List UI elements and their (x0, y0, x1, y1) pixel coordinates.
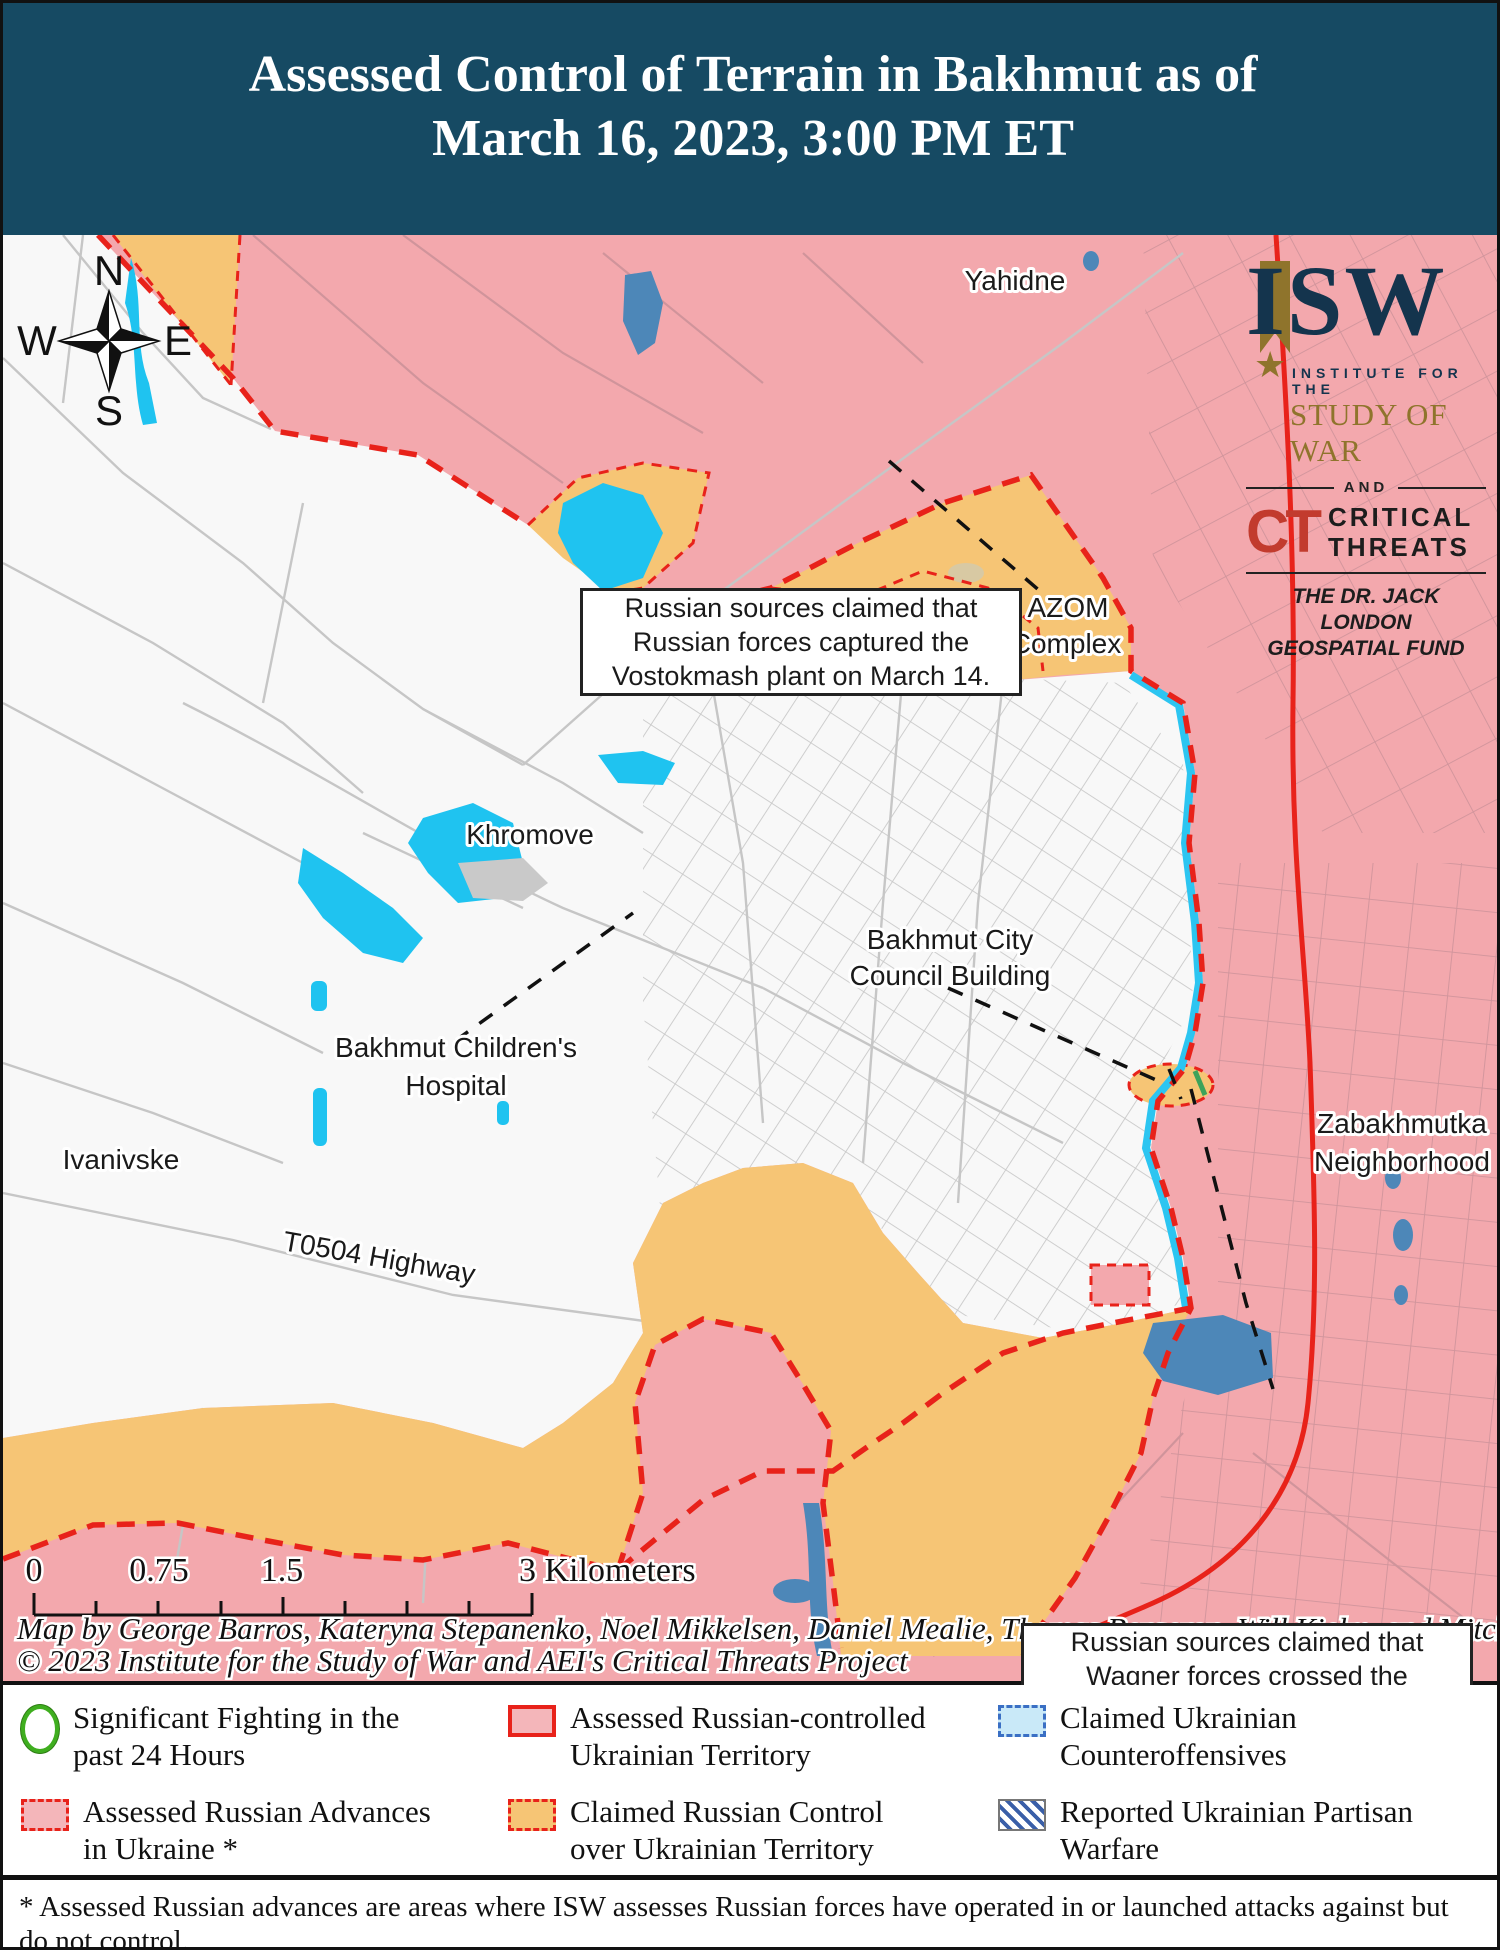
page-title-line1: Assessed Control of Terrain in Bakhmut a… (3, 43, 1500, 107)
isw-wordmark: ISW ★ (1246, 251, 1486, 357)
page: Assessed Control of Terrain in Bakhmut a… (0, 0, 1500, 1950)
russian-advances-icon (21, 1799, 69, 1831)
scale-0: 0 (26, 1552, 43, 1589)
ct-mark-icon: CT (1246, 502, 1318, 562)
legend-label: Claimed Ukrainian Counteroffensives (1060, 1699, 1418, 1773)
compass-s: S (95, 387, 123, 434)
footnote-band: * Assessed Russian advances are areas wh… (3, 1880, 1500, 1950)
legend-label: Assessed Russian-controlled Ukrainian Te… (570, 1699, 928, 1773)
logo-rule-left (1246, 487, 1334, 489)
logo-divider (1246, 572, 1486, 574)
annotation-vostokmash: Russian sources claimed that Russian for… (580, 588, 1022, 696)
label-azom-1: AZOM (1028, 592, 1109, 623)
compass-n: N (94, 247, 124, 294)
isw-star-icon: ★ (1254, 347, 1286, 383)
legend-item-partisan-warfare: Reported Ukrainian Partisan Warfare (998, 1793, 1468, 1867)
legend-item-ukrainian-counteroffensives: Claimed Ukrainian Counteroffensives (998, 1699, 1418, 1773)
title-banner: Assessed Control of Terrain in Bakhmut a… (3, 3, 1500, 235)
ukrainian-counteroffensives-icon (998, 1705, 1046, 1737)
label-hospital-1: Bakhmut Children's (335, 1032, 577, 1063)
legend-label: Significant Fighting in the past 24 Hour… (73, 1699, 401, 1773)
ct-logo-row: CT CRITICAL THREATS (1246, 502, 1486, 562)
footnote-text: * Assessed Russian advances are areas wh… (19, 1890, 1481, 1950)
fund-line1: THE DR. JACK LONDON (1246, 584, 1486, 636)
logo-and-row: AND (1246, 479, 1486, 496)
legend: Significant Fighting in the past 24 Hour… (3, 1685, 1500, 1880)
label-ivanivske: Ivanivske (63, 1144, 180, 1175)
isw-institute-text: INSTITUTE FOR THE (1292, 365, 1486, 397)
annotation-vostokmash-text: Russian sources claimed that Russian for… (593, 591, 1009, 693)
compass-w: W (17, 317, 57, 364)
russian-controlled-icon (508, 1705, 556, 1737)
legend-label: Reported Ukrainian Partisan Warfare (1060, 1793, 1468, 1867)
map-attribution-line2: © 2023 Institute for the Study of War an… (17, 1643, 909, 1678)
legend-item-significant-fighting: Significant Fighting in the past 24 Hour… (21, 1699, 401, 1773)
isw-ct-logo: ISW ★ INSTITUTE FOR THE STUDY OF WAR AND… (1246, 251, 1486, 662)
ct-words: CRITICAL THREATS (1328, 502, 1473, 562)
ct-critical-text: CRITICAL (1328, 502, 1473, 532)
logo-and-text: AND (1344, 479, 1389, 496)
ct-threats-text: THREATS (1328, 532, 1473, 562)
label-hospital-2: Hospital (405, 1070, 506, 1101)
label-zabakhmutka-2: Neighborhood (1314, 1146, 1490, 1177)
isw-study-text: STUDY OF WAR (1290, 397, 1486, 469)
significant-fighting-icon (21, 1705, 59, 1753)
label-khromove: Khromove (466, 819, 594, 850)
legend-label: Claimed Russian Control over Ukrainian T… (570, 1793, 938, 1867)
scale-075: 0.75 (129, 1552, 189, 1589)
legend-item-russian-advances: Assessed Russian Advances in Ukraine * (21, 1793, 451, 1867)
claimed-russian-control-icon (508, 1799, 556, 1831)
label-council-1: Bakhmut City (867, 924, 1034, 955)
label-yahidne: Yahidne (965, 265, 1066, 296)
label-zabakhmutka-1: Zabakhmutka (1317, 1108, 1487, 1139)
page-title-line2: March 16, 2023, 3:00 PM ET (3, 107, 1500, 171)
isw-text: ISW (1246, 251, 1447, 351)
logo-rule-right (1398, 487, 1486, 489)
legend-item-russian-controlled: Assessed Russian-controlled Ukrainian Te… (508, 1699, 928, 1773)
partisan-warfare-icon (998, 1799, 1046, 1831)
label-council-2: Council Building (850, 960, 1051, 991)
geospatial-fund-text: THE DR. JACK LONDON GEOSPATIAL FUND (1246, 584, 1486, 662)
scale-3km: 3 Kilometers (519, 1552, 696, 1589)
russian-advance-pocket (1091, 1265, 1149, 1305)
scale-15: 1.5 (261, 1552, 304, 1589)
legend-item-claimed-russian-control: Claimed Russian Control over Ukrainian T… (508, 1793, 938, 1867)
label-azom-2: Complex (1011, 628, 1121, 659)
compass-e: E (164, 317, 192, 364)
fund-line2: GEOSPATIAL FUND (1246, 636, 1486, 662)
legend-label: Assessed Russian Advances in Ukraine * (83, 1793, 451, 1867)
